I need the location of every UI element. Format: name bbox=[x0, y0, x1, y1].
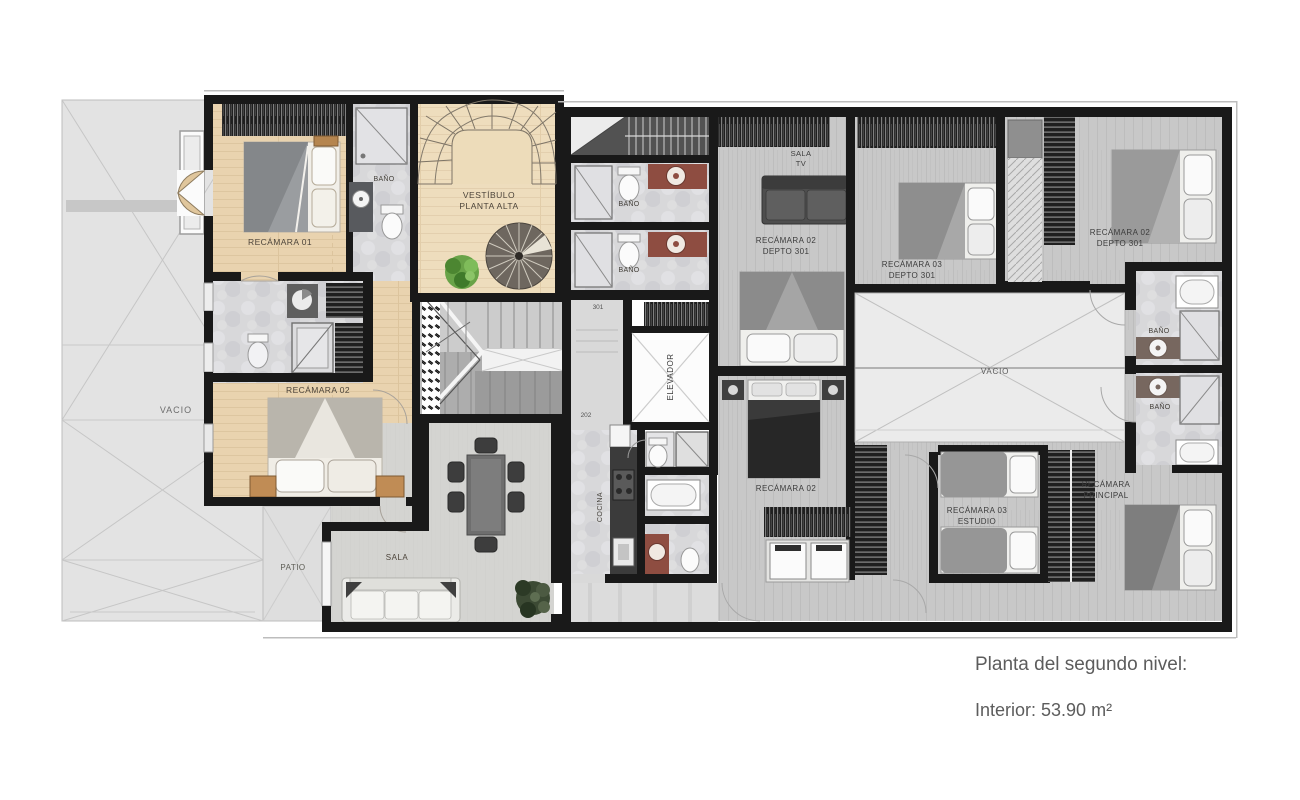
svg-text:Interior: 53.90 m²: Interior: 53.90 m² bbox=[975, 700, 1112, 720]
svg-text:RECÁMARA 02: RECÁMARA 02 bbox=[756, 236, 817, 245]
svg-text:VESTÍBULO: VESTÍBULO bbox=[463, 190, 515, 200]
svg-text:202: 202 bbox=[581, 412, 592, 419]
svg-text:SALA: SALA bbox=[791, 149, 812, 158]
svg-text:RECÁMARA 02: RECÁMARA 02 bbox=[1090, 228, 1151, 237]
svg-text:PLANTA ALTA: PLANTA ALTA bbox=[459, 201, 518, 211]
svg-text:BAÑO: BAÑO bbox=[373, 174, 394, 183]
svg-text:RECÁMARA 03: RECÁMARA 03 bbox=[947, 506, 1008, 515]
svg-text:VACIO: VACIO bbox=[981, 367, 1009, 376]
svg-text:BAÑO: BAÑO bbox=[618, 199, 639, 208]
svg-text:RECÁMARA: RECÁMARA bbox=[1082, 480, 1131, 489]
svg-text:BAÑO: BAÑO bbox=[1148, 326, 1169, 335]
svg-text:DEPTO 301: DEPTO 301 bbox=[1097, 239, 1144, 248]
svg-text:301: 301 bbox=[593, 304, 604, 311]
svg-text:Planta del segundo nivel:: Planta del segundo nivel: bbox=[975, 654, 1187, 675]
svg-text:RECÁMARA 02: RECÁMARA 02 bbox=[286, 385, 350, 395]
svg-text:PATIO: PATIO bbox=[280, 563, 305, 572]
svg-text:COCINA: COCINA bbox=[597, 492, 604, 522]
svg-text:RECÁMARA 01: RECÁMARA 01 bbox=[248, 237, 312, 247]
svg-text:ESTUDIO: ESTUDIO bbox=[958, 517, 996, 526]
svg-text:SALA: SALA bbox=[386, 553, 409, 562]
svg-text:ELEVADOR: ELEVADOR bbox=[666, 354, 675, 401]
svg-text:DEPTO 301: DEPTO 301 bbox=[889, 271, 936, 280]
svg-text:RECÁMARA 03: RECÁMARA 03 bbox=[882, 260, 943, 269]
svg-text:BAÑO: BAÑO bbox=[1149, 402, 1170, 411]
svg-text:TV: TV bbox=[796, 159, 806, 168]
svg-text:VACIO: VACIO bbox=[160, 405, 192, 415]
svg-text:DEPTO 301: DEPTO 301 bbox=[763, 247, 810, 256]
svg-text:RECÁMARA 02: RECÁMARA 02 bbox=[756, 484, 817, 493]
svg-text:PRINCIPAL: PRINCIPAL bbox=[1083, 491, 1128, 500]
svg-text:BAÑO: BAÑO bbox=[618, 265, 639, 274]
